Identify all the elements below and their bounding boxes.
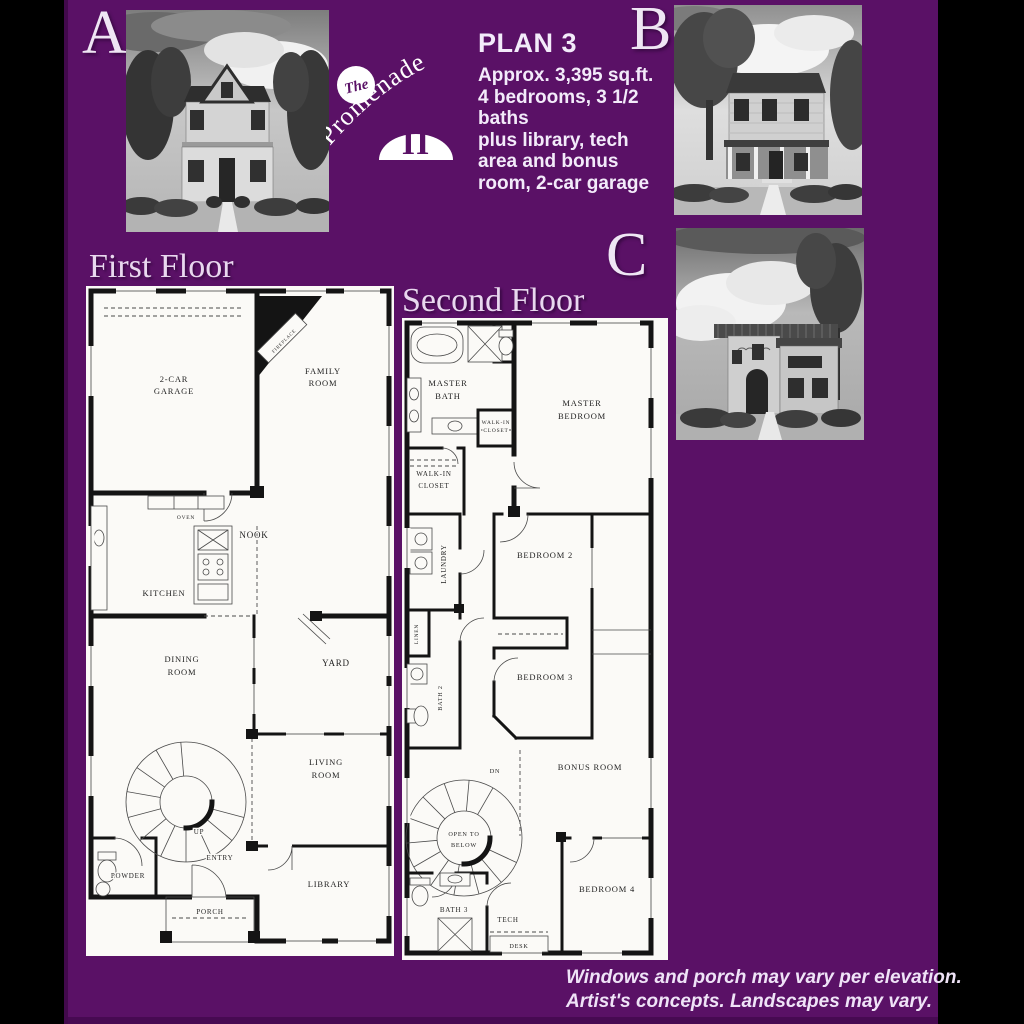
elevation-a-photo [126, 10, 329, 232]
elevation-c-photo [676, 228, 864, 440]
label-master-bath-1: MASTER [428, 378, 467, 388]
label-porch: PORCH [196, 908, 223, 916]
label-walkin-2: CLOSET [418, 482, 449, 490]
second-floor-plan: MASTER BATH MASTER BEDROOM WALK-IN CLOSE… [402, 318, 668, 960]
label-dining-1: DINING [164, 654, 199, 664]
label-family-2: ROOM [309, 378, 338, 388]
master-toilet [499, 337, 513, 355]
plan-title: PLAN 3 [478, 28, 688, 59]
label-powder: POWDER [111, 872, 145, 880]
label-bedroom3: BEDROOM 3 [517, 672, 573, 682]
label-garage-2: GARAGE [154, 386, 194, 396]
label-walkin-small-2: CLOSET [483, 428, 508, 434]
label-bath2: BATH 2 [437, 685, 444, 711]
label-dn: DN [490, 768, 501, 775]
label-library: LIBRARY [308, 879, 350, 889]
label-oven: OVEN [177, 515, 195, 521]
label-entry: ENTRY [207, 854, 234, 862]
brochure-page: A B C [64, 0, 938, 1024]
label-dining-2: ROOM [168, 667, 197, 677]
label-nook: NOOK [239, 530, 268, 540]
second-floor-title: Second Floor [402, 282, 584, 320]
plan-extra-1: plus library, tech [478, 130, 688, 152]
elevation-c-label: C [606, 224, 647, 286]
label-walkin-1: WALK-IN [416, 470, 452, 478]
promenade-logo: Promenade The II [326, 26, 486, 186]
label-up: UP [194, 828, 205, 836]
label-laundry: LAUNDRY [440, 544, 448, 583]
label-bedroom2: BEDROOM 2 [517, 550, 573, 560]
first-floor-title: First Floor [89, 248, 234, 286]
disclaimer-line-1: Windows and porch may vary per elevation… [566, 966, 966, 990]
master-tub [411, 327, 463, 363]
label-bedroom4: BEDROOM 4 [579, 884, 635, 894]
elevation-a-label: A [82, 2, 127, 64]
label-linen: LINEN [414, 624, 420, 644]
label-bath3: BATH 3 [440, 906, 468, 914]
bath3-toilet [412, 886, 428, 906]
label-open-below-2: BELOW [451, 842, 477, 849]
label-master-bath-2: BATH [435, 391, 460, 401]
label-open-below-1: OPEN TO [448, 831, 479, 838]
plan-extra-2: area and bonus [478, 151, 688, 173]
label-kitchen: KITCHEN [143, 588, 186, 598]
kitchen-island [194, 526, 232, 604]
label-family-1: FAMILY [305, 366, 341, 376]
disclaimer: Windows and porch may vary per elevation… [566, 966, 966, 1014]
plan-info: PLAN 3 Approx. 3,395 sq.ft. 4 bedrooms, … [478, 28, 688, 194]
label-master-bedroom-2: BEDROOM [558, 411, 606, 421]
label-master-bedroom-1: MASTER [562, 398, 601, 408]
house-rendering-b [674, 5, 862, 215]
label-yard: YARD [322, 658, 350, 668]
label-living-1: LIVING [309, 757, 343, 767]
label-garage-1: 2-CAR [160, 374, 189, 384]
house-rendering-a [126, 10, 329, 232]
disclaimer-line-2: Artist's concepts. Landscapes may vary. [566, 990, 966, 1014]
plan-garage: room, 2-car garage [478, 173, 688, 195]
label-walkin-small-1: WALK-IN [482, 420, 511, 426]
label-desk: DESK [509, 943, 528, 950]
label-bonus: BONUS ROOM [558, 762, 622, 772]
bath2-toilet [414, 706, 428, 726]
elevation-b-photo [674, 5, 862, 215]
label-tech: TECH [497, 916, 518, 924]
plan-beds-baths: 4 bedrooms, 3 1/2 baths [478, 87, 688, 130]
plan-sqft: Approx. 3,395 sq.ft. [478, 65, 688, 87]
house-rendering-c [676, 228, 864, 440]
label-living-2: ROOM [312, 770, 341, 780]
first-floor-plan: 2-CAR GARAGE FAMILY ROOM FIREPLACE OVEN … [86, 286, 394, 956]
logo-numeral: II [402, 125, 430, 162]
